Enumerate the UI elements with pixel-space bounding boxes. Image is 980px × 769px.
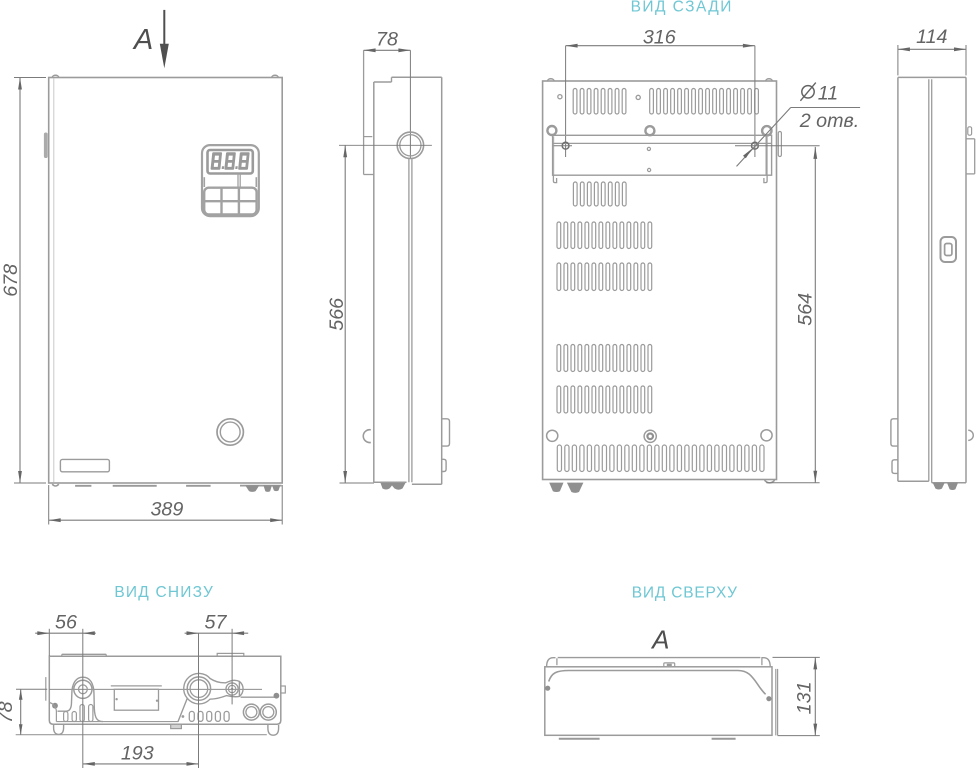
svg-text:193: 193 [121, 743, 154, 765]
svg-text:ВИД СВЕРХУ: ВИД СВЕРХУ [632, 585, 738, 602]
svg-text:566: 566 [326, 298, 348, 331]
svg-text:78: 78 [0, 701, 17, 723]
svg-text:A: A [650, 624, 669, 654]
svg-text:11: 11 [818, 83, 838, 105]
svg-text:56: 56 [55, 611, 77, 633]
svg-text:A: A [132, 24, 153, 56]
svg-text:78: 78 [376, 28, 398, 50]
svg-text:316: 316 [643, 27, 676, 49]
svg-text:131: 131 [794, 681, 816, 714]
svg-text:114: 114 [916, 26, 947, 48]
svg-text:564: 564 [795, 293, 817, 326]
svg-text:57: 57 [205, 611, 228, 633]
svg-text:2 отв.: 2 отв. [799, 110, 860, 132]
svg-text:ВИД СНИЗУ: ВИД СНИЗУ [114, 584, 214, 601]
svg-text:389: 389 [150, 499, 183, 521]
svg-text:ВИД СЗАДИ: ВИД СЗАДИ [631, 0, 733, 15]
svg-text:678: 678 [0, 264, 22, 297]
